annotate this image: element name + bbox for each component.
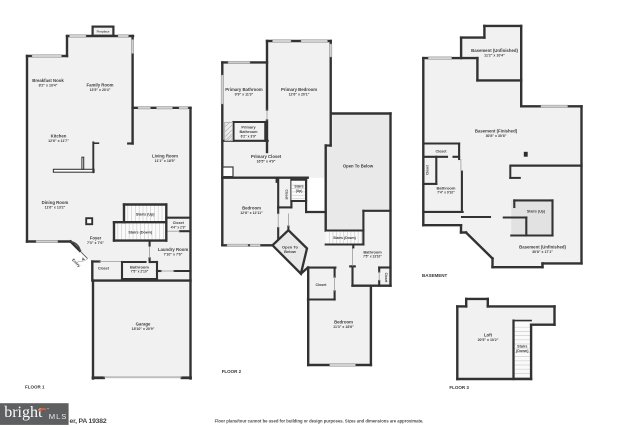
svg-text:Family Room: Family Room <box>87 82 114 87</box>
svg-text:6'2" x 3'9": 6'2" x 3'9" <box>241 134 257 138</box>
svg-text:Basement (Unfinished): Basement (Unfinished) <box>519 244 566 249</box>
svg-text:BASEMENT: BASEMENT <box>422 273 448 278</box>
svg-text:Closet: Closet <box>426 164 430 175</box>
svg-text:MLS: MLS <box>49 412 68 421</box>
svg-text:7'3" x 7'6": 7'3" x 7'6" <box>87 241 104 245</box>
svg-text:Bathroom: Bathroom <box>437 185 456 190</box>
svg-text:7'5" x 13'10": 7'5" x 13'10" <box>363 255 382 259</box>
svg-text:Garage: Garage <box>136 321 151 326</box>
svg-text:™: ™ <box>46 407 49 411</box>
svg-text:Stairs (Up): Stairs (Up) <box>136 213 155 217</box>
svg-text:Primary Bedroom: Primary Bedroom <box>281 87 317 92</box>
svg-text:Foyer: Foyer <box>90 235 102 240</box>
svg-text:FLOOR 1: FLOOR 1 <box>25 384 45 389</box>
svg-text:7'10" x 7'6": 7'10" x 7'6" <box>164 252 183 256</box>
svg-text:8'2" x 10'4": 8'2" x 10'4" <box>39 83 58 87</box>
svg-text:Closet: Closet <box>316 283 328 287</box>
svg-text:Breakfast Nook: Breakfast Nook <box>32 78 64 83</box>
svg-text:20'5" x 10'2": 20'5" x 10'2" <box>478 338 499 342</box>
svg-text:12'6" x 20'1": 12'6" x 20'1" <box>289 92 310 96</box>
svg-text:Below: Below <box>284 249 297 254</box>
svg-text:Fireplace: Fireplace <box>97 30 110 34</box>
svg-text:11'2" x 10'4": 11'2" x 10'4" <box>484 54 505 58</box>
svg-text:Kitchen: Kitchen <box>51 133 67 138</box>
svg-text:Floor plans/tour cannot be use: Floor plans/tour cannot be used for buil… <box>215 419 424 424</box>
svg-text:er, PA 19382: er, PA 19382 <box>70 418 107 425</box>
svg-text:11'3" x 18'6": 11'3" x 18'6" <box>333 325 354 329</box>
svg-text:Loft: Loft <box>484 332 493 337</box>
svg-text:11'6" x 13'2": 11'6" x 13'2" <box>45 205 66 209</box>
svg-text:Entry: Entry <box>71 257 82 268</box>
svg-text:Dining Room: Dining Room <box>42 200 69 205</box>
svg-text:Open To Below: Open To Below <box>343 164 374 169</box>
svg-text:Closet: Closet <box>384 273 388 284</box>
svg-text:Stairs: Stairs <box>517 345 527 349</box>
svg-text:Bathroom: Bathroom <box>240 130 259 134</box>
svg-text:Basement (Unfinished): Basement (Unfinished) <box>471 48 518 53</box>
svg-text:(Down): (Down) <box>516 349 529 353</box>
svg-text:11'1" x 18'5": 11'1" x 18'5" <box>155 159 176 163</box>
svg-text:4'4" x 2'3": 4'4" x 2'3" <box>171 225 187 229</box>
svg-text:(Up): (Up) <box>296 189 303 193</box>
svg-text:13'5" x 20'4": 13'5" x 20'4" <box>90 88 111 92</box>
svg-text:Bedroom: Bedroom <box>242 205 261 210</box>
svg-text:7'4" x 9'10": 7'4" x 9'10" <box>437 191 455 195</box>
svg-text:Closet: Closet <box>284 189 288 200</box>
svg-text:FLOOR 2: FLOOR 2 <box>222 369 242 374</box>
svg-text:Primary Bathroom: Primary Bathroom <box>225 87 263 92</box>
svg-text:9'9" x 11'3": 9'9" x 11'3" <box>235 92 254 96</box>
svg-text:Primary: Primary <box>241 125 256 129</box>
svg-text:Stairs (Down): Stairs (Down) <box>128 230 153 234</box>
svg-text:12'6" x 11'7": 12'6" x 11'7" <box>48 139 69 143</box>
svg-text:7'5" x 2'10": 7'5" x 2'10" <box>131 270 149 274</box>
svg-text:Laundry Room: Laundry Room <box>158 247 188 252</box>
svg-text:Primary Closet: Primary Closet <box>251 154 282 159</box>
svg-text:FLOOR 3: FLOOR 3 <box>449 385 469 390</box>
svg-text:18'10" x 20'9": 18'10" x 20'9" <box>132 327 155 331</box>
svg-text:Bedroom: Bedroom <box>334 319 353 324</box>
svg-text:bright: bright <box>4 404 43 421</box>
svg-text:Stairs (Up): Stairs (Up) <box>527 210 546 214</box>
svg-text:16'5" x 4'9": 16'5" x 4'9" <box>257 159 276 163</box>
svg-text:Basement (Finished): Basement (Finished) <box>475 128 518 133</box>
svg-text:Stairs (Down): Stairs (Down) <box>333 236 356 240</box>
svg-text:12'8" x 12'11": 12'8" x 12'11" <box>240 211 263 215</box>
svg-text:Living Room: Living Room <box>152 153 178 158</box>
svg-text:30'8" x 17'1": 30'8" x 17'1" <box>532 250 553 254</box>
svg-text:30'8" x 30'8": 30'8" x 30'8" <box>486 134 507 138</box>
svg-text:Closet: Closet <box>98 267 110 271</box>
svg-text:Closet: Closet <box>436 149 448 153</box>
